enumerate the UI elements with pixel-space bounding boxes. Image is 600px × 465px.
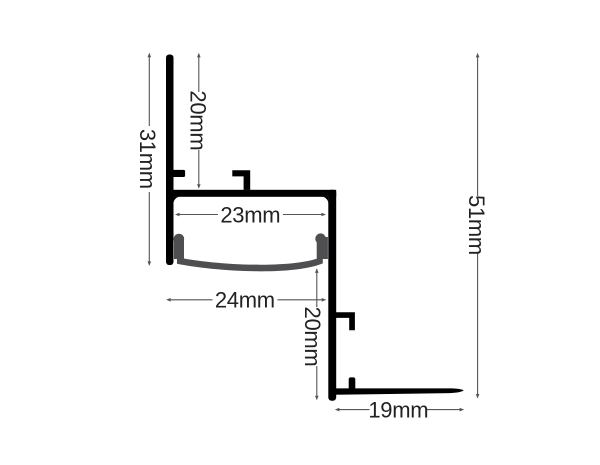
svg-text:20mm: 20mm [300,307,325,367]
svg-text:23mm: 23mm [220,203,280,228]
svg-text:19mm: 19mm [368,397,428,422]
svg-text:31mm: 31mm [135,129,160,189]
svg-text:20mm: 20mm [185,90,210,150]
svg-text:51mm: 51mm [464,195,489,255]
svg-text:24mm: 24mm [215,288,275,313]
